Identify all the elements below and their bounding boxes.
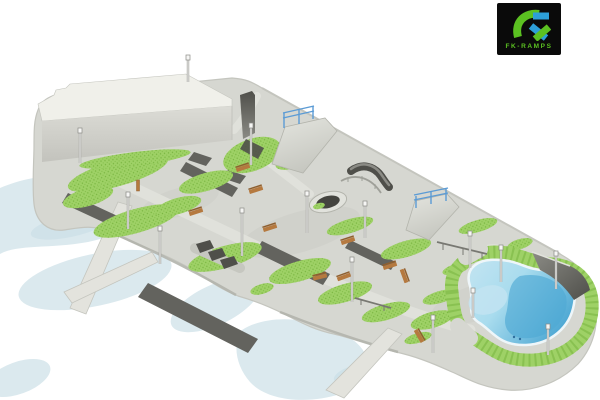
fk-ramps-logo: FK-RAMPS <box>497 3 561 55</box>
skatepark-render <box>0 0 600 400</box>
pool-drain <box>513 336 515 338</box>
trash-bin <box>137 180 140 191</box>
ring-gap <box>458 326 470 338</box>
pool-drain <box>519 338 521 340</box>
logo-wordmark: FK-RAMPS <box>505 43 552 50</box>
render-canvas: FK-RAMPS <box>0 0 600 400</box>
river-blob <box>0 351 55 400</box>
fk-monogram-icon <box>507 9 551 41</box>
